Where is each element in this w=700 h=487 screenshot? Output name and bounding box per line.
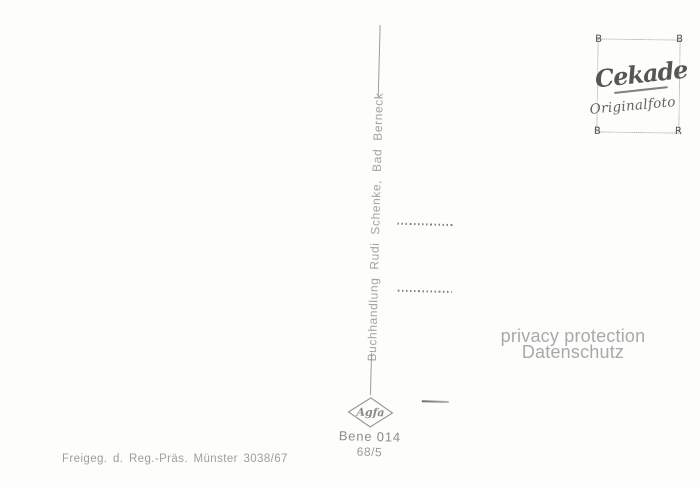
agfa-brand-text: Agfa bbox=[355, 406, 384, 420]
center-divider-column: Buchhandlung Rudi Schenke, Bad Berneck A… bbox=[269, 0, 482, 487]
privacy-watermark: privacy protection Datenschutz bbox=[458, 328, 688, 360]
license-text: Freigeg. d. Reg.-Präs. Münster 3038/67 bbox=[62, 453, 288, 465]
publisher-vertical-text: Buchhandlung Rudi Schenke, Bad Berneck bbox=[365, 92, 386, 361]
cekade-stamp: B B B R Cekade Originalfoto bbox=[587, 30, 688, 139]
stamp-corner-letter-bottom-right: R bbox=[675, 126, 682, 137]
postcard-back-scan: Buchhandlung Rudi Schenke, Bad Berneck A… bbox=[0, 0, 700, 487]
privacy-watermark-line2: Datenschutz bbox=[458, 344, 688, 360]
stamp-corner-letter-top-right: B bbox=[676, 34, 683, 45]
stamp-corner-letter-top-left: B bbox=[595, 34, 602, 45]
address-dotted-line-1 bbox=[397, 223, 454, 226]
agfa-diamond-logo: Agfa bbox=[346, 396, 395, 429]
divider-line-bottom bbox=[370, 353, 372, 395]
stamp-corner-letter-bottom-left: B bbox=[594, 126, 601, 137]
short-dash-line bbox=[422, 400, 449, 402]
divider-line-top bbox=[378, 25, 381, 98]
address-dotted-line-2 bbox=[398, 290, 452, 293]
agfa-diamond-icon: Agfa bbox=[346, 396, 395, 429]
